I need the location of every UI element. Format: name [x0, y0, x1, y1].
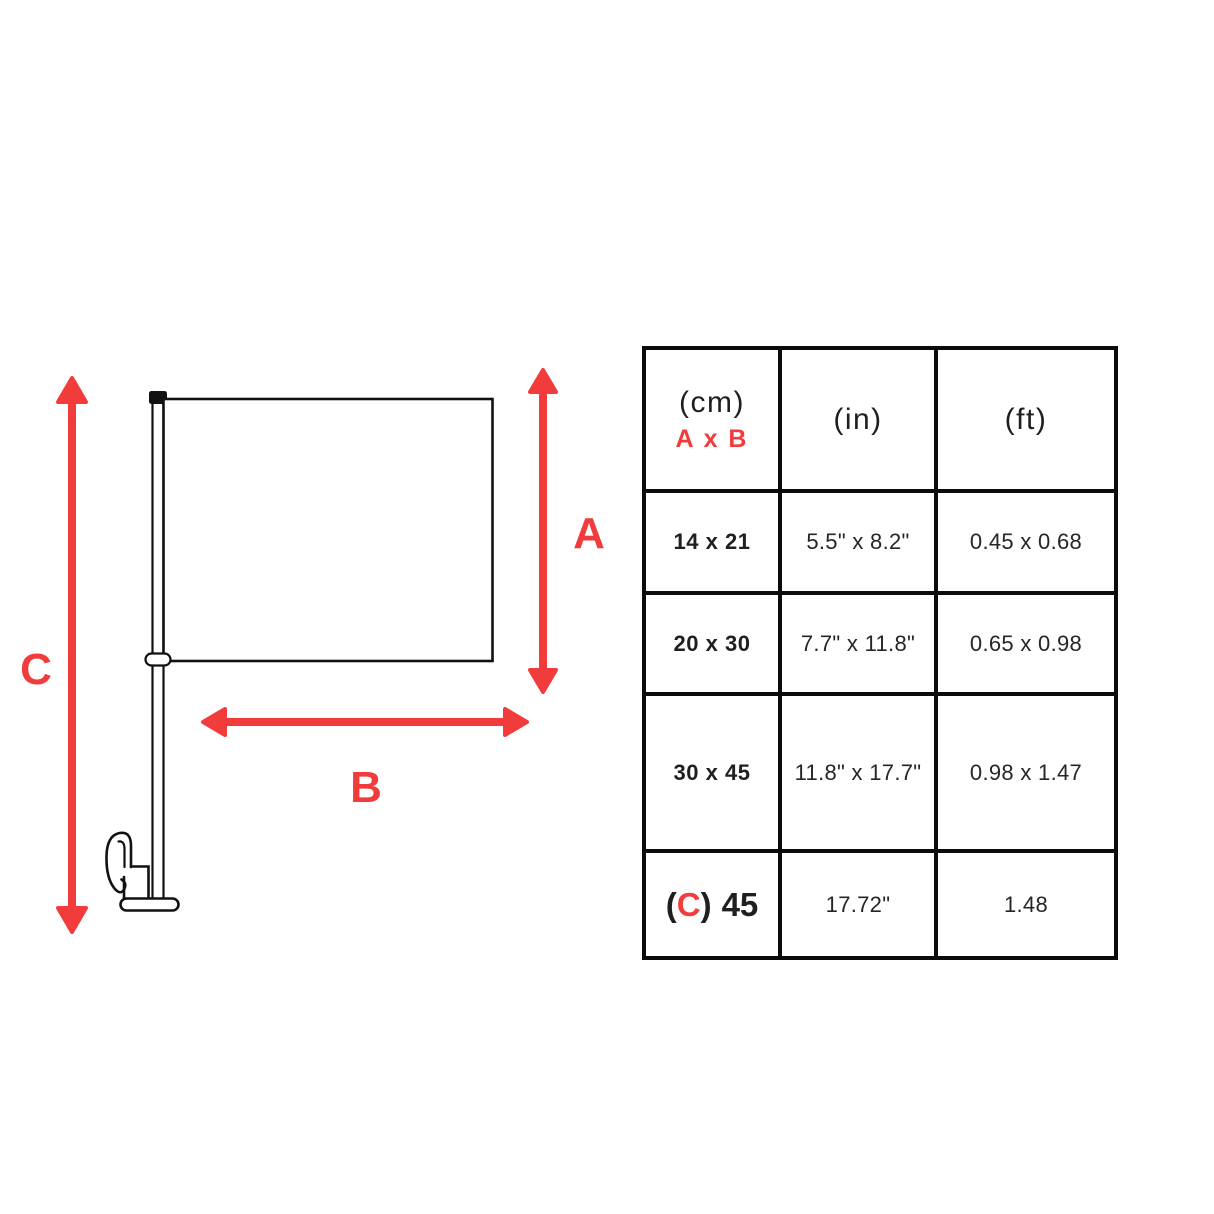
table-cell-in-30x45: 11.8" x 17.7"	[782, 696, 934, 849]
c45-close-paren: )	[701, 886, 712, 924]
table-cell-cm-20x30: 20 x 30	[646, 595, 778, 692]
pole-joint	[146, 654, 171, 666]
header-ft: (ft)	[938, 350, 1114, 489]
flag-canvas	[164, 399, 493, 661]
clip-foot	[121, 899, 179, 911]
table-cell-ft-c45: 1.48	[938, 853, 1114, 956]
table-cell-cm-14x21: 14 x 21	[646, 493, 778, 591]
car-flag-size-guide: { "diagram": { "labels": { "a": "A", "b"…	[0, 0, 1214, 1214]
dimension-arrow-c	[58, 378, 86, 932]
table-cell-cm-c45: (C)45	[646, 853, 778, 956]
header-cm-unit: (cm)	[679, 384, 745, 422]
size-table: (cm) A x B (in) (ft) 14 x 21 5.5" x 8.2"…	[642, 346, 1118, 960]
header-in: (in)	[782, 350, 934, 489]
table-cell-ft-20x30: 0.65 x 0.98	[938, 595, 1114, 692]
dimension-label-a: A	[573, 512, 605, 556]
table-cell-ft-30x45: 0.98 x 1.47	[938, 696, 1114, 849]
table-cell-ft-14x21: 0.45 x 0.68	[938, 493, 1114, 591]
dimension-arrow-b	[203, 709, 527, 735]
dimension-arrow-a	[530, 370, 556, 692]
flag-pole	[153, 396, 164, 902]
table-cell-cm-30x45: 30 x 45	[646, 696, 778, 849]
clip-bracket	[124, 867, 149, 901]
table-cell-in-14x21: 5.5" x 8.2"	[782, 493, 934, 591]
c45-value: 45	[722, 886, 759, 924]
dimension-label-c: C	[20, 648, 52, 692]
table-cell-in-20x30: 7.7" x 11.8"	[782, 595, 934, 692]
header-cm: (cm) A x B	[646, 350, 778, 489]
c45-open-paren: (	[666, 886, 677, 924]
flag-diagram	[0, 350, 640, 980]
window-clip	[106, 833, 178, 911]
dimension-label-b: B	[350, 766, 382, 810]
table-cell-in-c45: 17.72"	[782, 853, 934, 956]
c45-letter: C	[677, 886, 701, 924]
header-cm-axb: A x B	[676, 424, 749, 455]
